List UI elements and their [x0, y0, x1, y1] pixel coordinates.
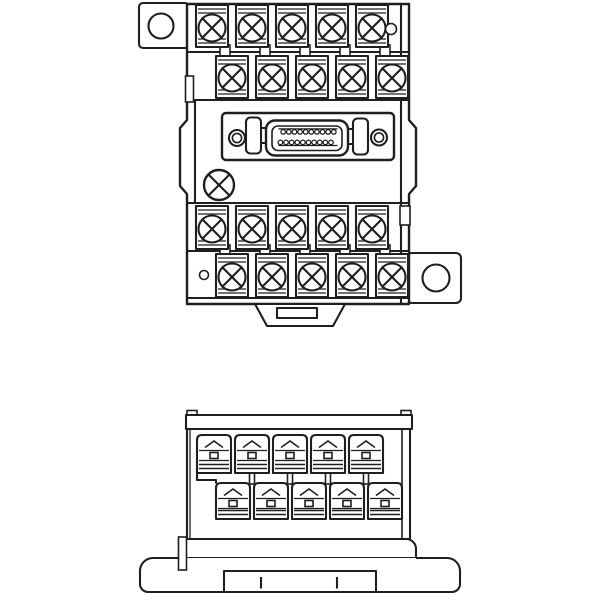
connector-pin — [315, 130, 320, 135]
screw-terminal — [336, 254, 368, 297]
screw-slot — [286, 453, 294, 459]
mounting-hole-icon — [149, 14, 174, 39]
panel-hole-left — [229, 130, 245, 146]
screw-terminal — [296, 254, 328, 297]
connector-pin — [306, 140, 311, 145]
screw-terminal — [196, 5, 228, 47]
connector-pin — [298, 130, 303, 135]
screw-slot — [248, 453, 256, 459]
screw-terminal — [216, 56, 248, 98]
connector-pin — [284, 140, 289, 145]
screw-terminal — [256, 254, 288, 297]
small-hole-icon — [200, 271, 209, 280]
connector-pin — [331, 130, 336, 135]
screw-slot — [324, 453, 332, 459]
screw-terminal — [316, 206, 348, 249]
screw-terminal-front — [216, 483, 250, 519]
connector-pin — [295, 140, 300, 145]
front-view — [140, 411, 460, 593]
latch-slot — [277, 308, 317, 318]
mounting-tab-top-left — [139, 3, 189, 48]
screw-terminal — [276, 206, 308, 249]
connector-pin — [309, 130, 314, 135]
lock-latch-right — [353, 119, 368, 155]
captive-screw-icon — [204, 170, 234, 200]
terminal-block-drawing — [0, 0, 600, 600]
screw-terminal-front — [368, 483, 402, 519]
screw-terminal-front — [273, 435, 307, 473]
screw-slot — [305, 501, 313, 507]
technical-drawing-canvas — [0, 0, 600, 600]
rail-clamp-slider — [179, 537, 187, 570]
screw-terminal — [196, 206, 228, 249]
connector-pin — [281, 130, 286, 135]
screw-terminal — [376, 56, 408, 98]
screw-terminal — [216, 254, 248, 297]
screw-terminal — [236, 5, 268, 47]
connector-pin — [317, 140, 322, 145]
base-plate — [224, 571, 376, 592]
screw-terminal — [276, 5, 308, 47]
connector-panel — [222, 113, 394, 160]
screw-terminal — [356, 5, 388, 47]
connector-pin — [329, 140, 334, 145]
screw-terminal — [356, 206, 388, 249]
screw-terminal — [316, 5, 348, 47]
screw-slot — [343, 501, 351, 507]
screw-terminal — [236, 206, 268, 249]
screw-terminal — [296, 56, 328, 98]
screw-slot — [381, 501, 389, 507]
connector-pin — [326, 130, 331, 135]
connector-pin — [303, 130, 308, 135]
connector-pin — [292, 130, 297, 135]
connector-pin — [323, 140, 328, 145]
screw-terminal-front — [254, 483, 288, 519]
connector-pin — [289, 140, 294, 145]
panel-hole-right — [371, 130, 387, 146]
small-hole-icon — [386, 24, 397, 35]
connector-pin — [301, 140, 306, 145]
screw-terminal-front — [330, 483, 364, 519]
lock-latch-left — [246, 118, 261, 154]
screw-slot — [229, 501, 237, 507]
screw-terminal-front — [197, 435, 231, 473]
mounting-hole-icon — [423, 265, 450, 292]
connector-pin — [278, 140, 283, 145]
base-band — [179, 539, 416, 558]
connector-pin — [287, 130, 292, 135]
mounting-tab-bottom-right — [407, 253, 461, 303]
connector-pin — [312, 140, 317, 145]
screw-terminal-front — [235, 435, 269, 473]
screw-slot — [210, 453, 218, 459]
screw-slot — [362, 453, 370, 459]
screw-terminal — [376, 254, 408, 297]
din-rail-base — [140, 537, 460, 592]
top-view — [139, 3, 461, 326]
screw-terminal — [256, 56, 288, 98]
right-edge-step — [400, 206, 410, 225]
screw-terminal-front — [292, 483, 326, 519]
din-rail-latch — [255, 304, 345, 326]
top-cap — [186, 415, 412, 429]
screw-terminal-front — [311, 435, 345, 473]
screw-terminal — [336, 56, 368, 98]
connector-pin — [320, 130, 325, 135]
left-edge-step — [186, 76, 194, 102]
screw-slot — [267, 501, 275, 507]
screw-terminal-front — [349, 435, 383, 473]
